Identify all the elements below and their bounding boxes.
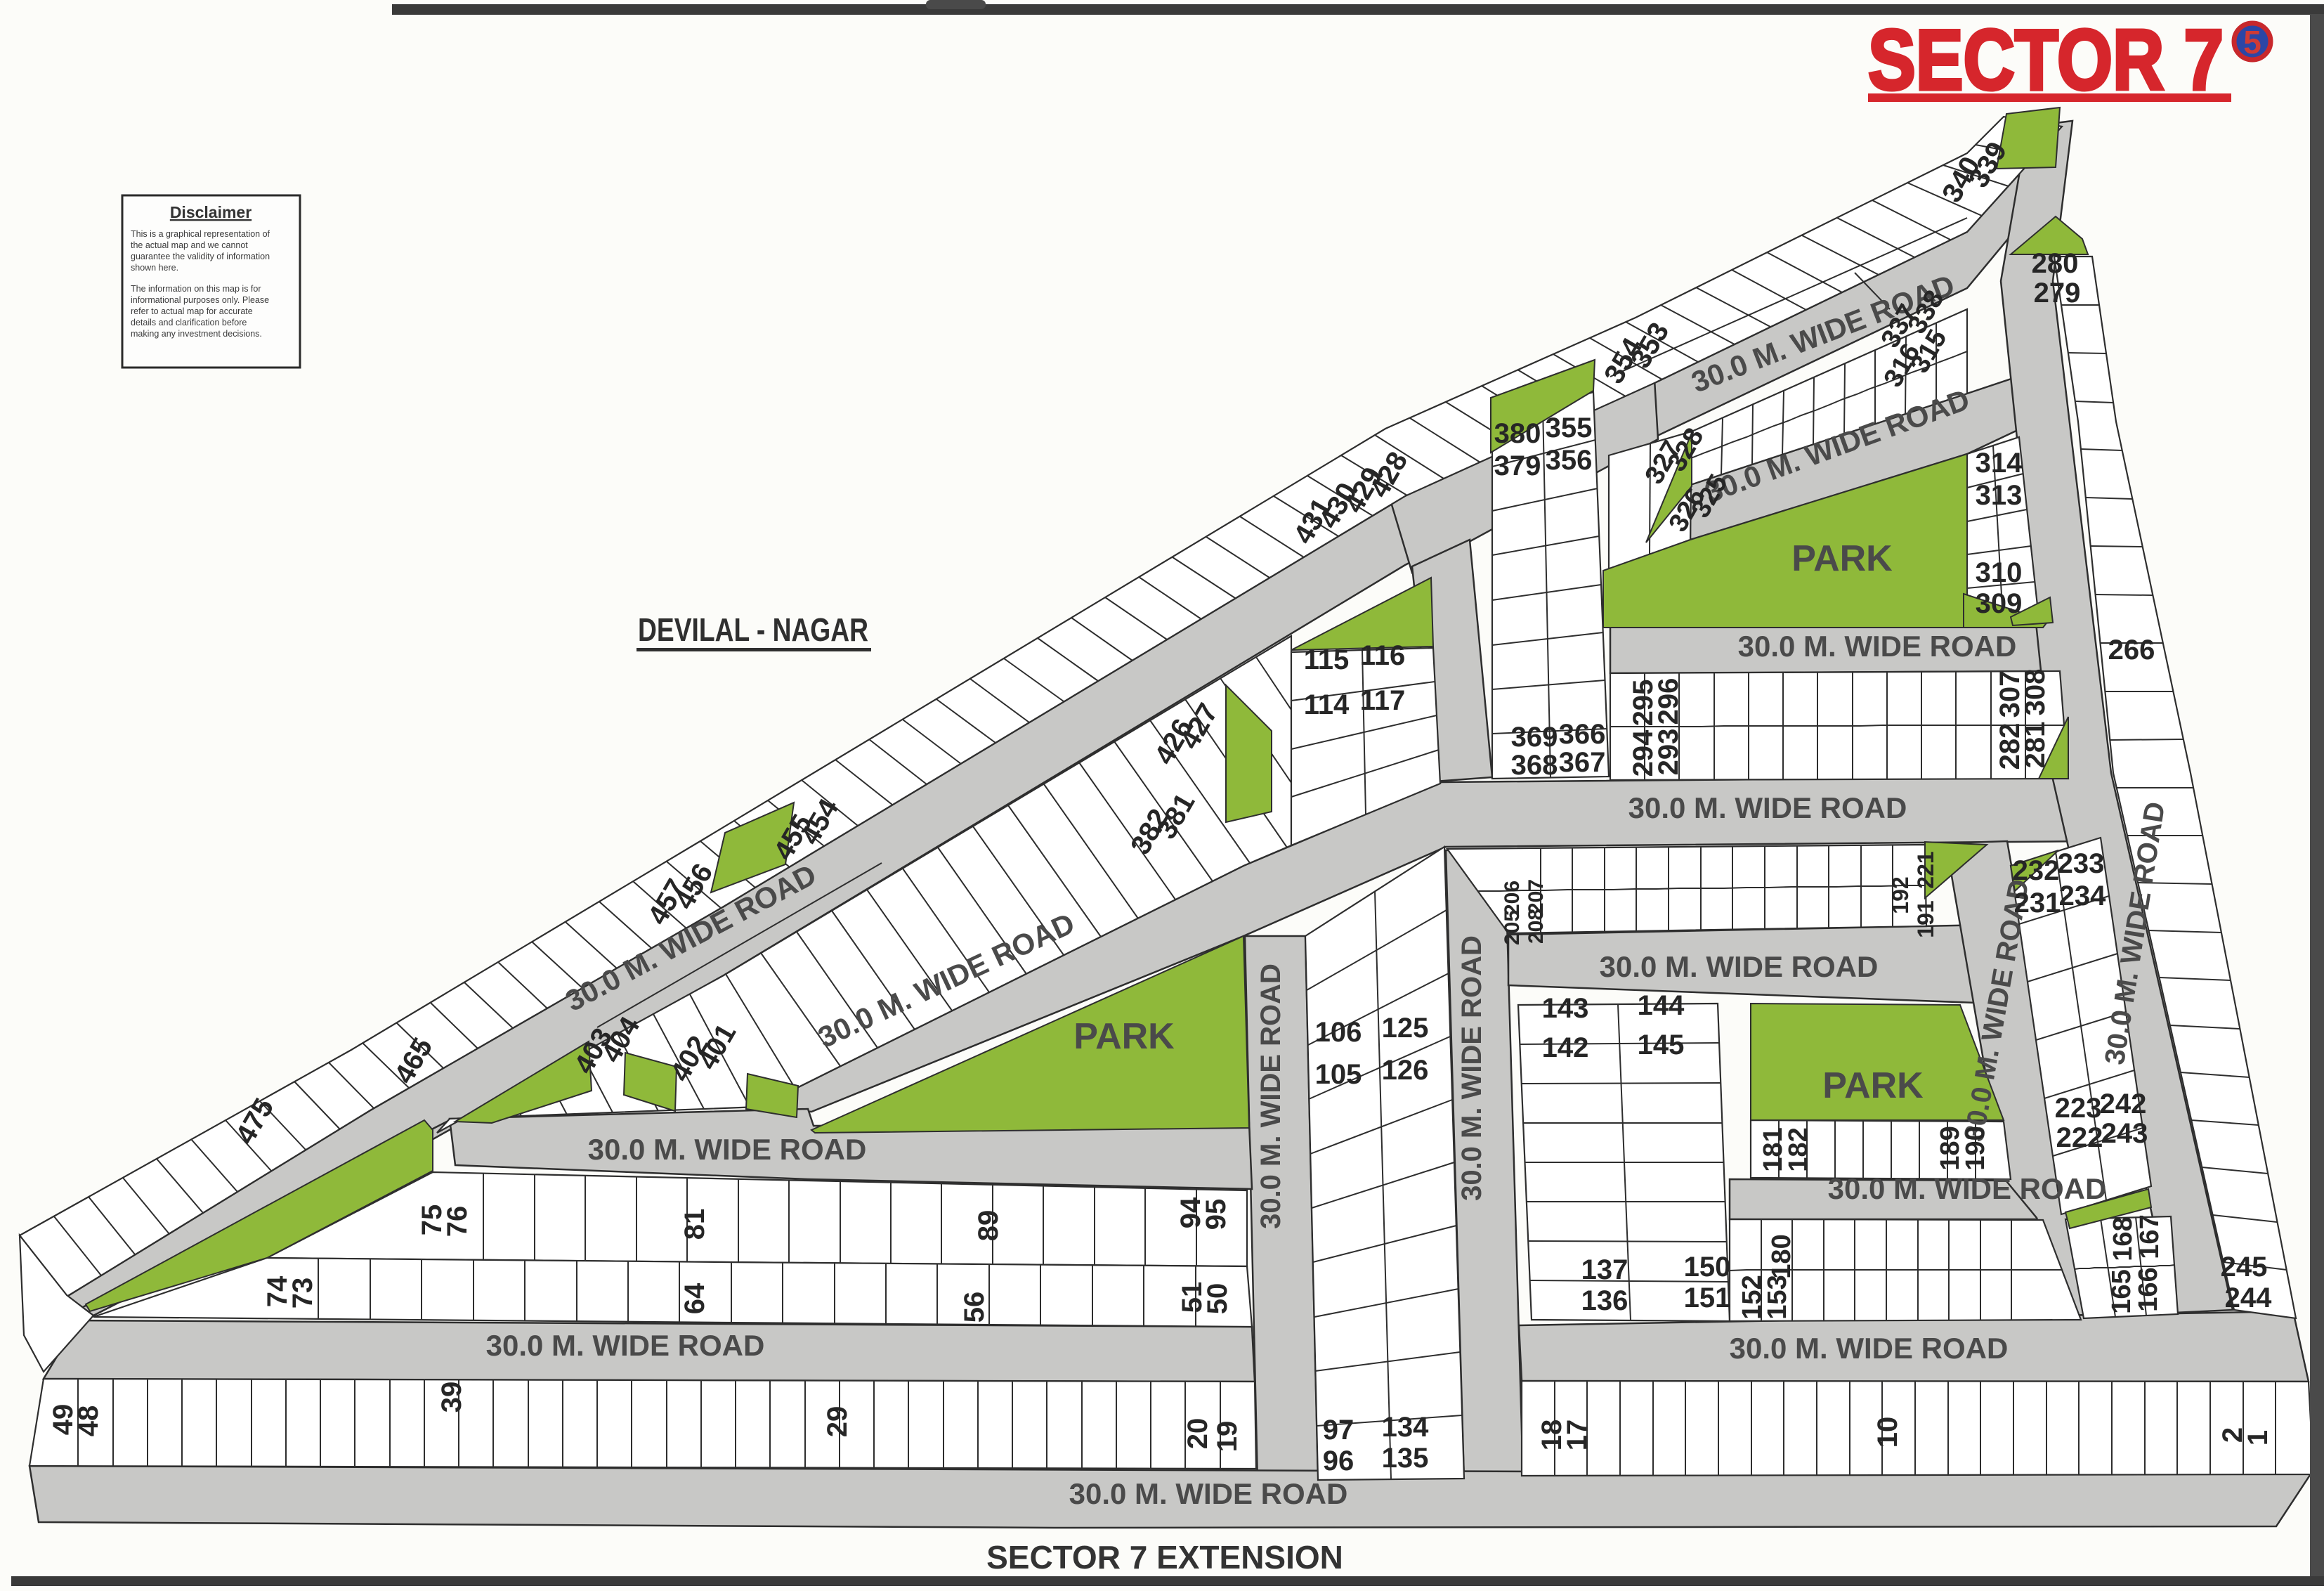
svg-text:280: 280 <box>2032 248 2079 279</box>
svg-text:30.0 M. WIDE ROAD: 30.0 M. WIDE ROAD <box>1730 1332 2009 1365</box>
svg-text:39: 39 <box>436 1382 467 1413</box>
svg-text:313: 313 <box>1976 480 2023 511</box>
svg-text:96: 96 <box>1323 1446 1354 1476</box>
svg-text:134: 134 <box>1382 1412 1429 1443</box>
svg-text:114: 114 <box>1304 689 1350 720</box>
svg-text:208: 208 <box>1525 909 1548 944</box>
svg-text:20: 20 <box>1182 1418 1213 1450</box>
svg-text:192: 192 <box>1888 876 1913 914</box>
svg-text:166: 166 <box>2134 1267 2163 1311</box>
svg-text:308: 308 <box>2020 669 2051 716</box>
svg-text:81: 81 <box>679 1209 710 1240</box>
svg-text:137: 137 <box>1581 1254 1628 1285</box>
svg-text:309: 309 <box>1976 588 2023 619</box>
svg-text:PARK: PARK <box>1822 1065 1924 1106</box>
svg-text:126: 126 <box>1382 1055 1429 1086</box>
svg-text:SECTOR 7: SECTOR 7 <box>1868 12 2224 108</box>
svg-text:279: 279 <box>2034 278 2081 309</box>
svg-text:205: 205 <box>1501 910 1524 945</box>
svg-text:165: 165 <box>2107 1269 2136 1313</box>
svg-text:379: 379 <box>1494 450 1541 481</box>
svg-text:144: 144 <box>1638 990 1685 1021</box>
svg-text:the actual map and we cannot: the actual map and we cannot <box>131 240 248 250</box>
svg-text:1: 1 <box>2243 1430 2273 1446</box>
svg-text:125: 125 <box>1382 1013 1429 1044</box>
svg-text:153: 153 <box>1763 1275 1792 1319</box>
svg-text:293: 293 <box>1653 729 1684 776</box>
svg-text:369: 369 <box>1511 722 1558 753</box>
svg-text:190: 190 <box>1961 1126 1990 1170</box>
svg-text:informational purposes only. P: informational purposes only. Please <box>131 295 269 305</box>
svg-text:266: 266 <box>2108 635 2155 665</box>
svg-text:10: 10 <box>1872 1417 1903 1448</box>
svg-text:222: 222 <box>2056 1122 2103 1153</box>
svg-text:231: 231 <box>2014 888 2061 918</box>
svg-text:232: 232 <box>2013 855 2060 886</box>
svg-text:50: 50 <box>1202 1283 1233 1315</box>
svg-text:5: 5 <box>2243 24 2261 60</box>
svg-text:The information on this map is: The information on this map is for <box>131 284 261 294</box>
svg-text:17: 17 <box>1562 1420 1593 1451</box>
svg-text:guarantee the validity of info: guarantee the validity of information <box>131 252 270 261</box>
svg-text:145: 145 <box>1638 1030 1685 1060</box>
svg-text:19: 19 <box>1212 1421 1243 1453</box>
svg-text:142: 142 <box>1542 1032 1589 1063</box>
svg-text:details and clarification befo: details and clarification before <box>131 318 247 327</box>
svg-text:Disclaimer: Disclaimer <box>170 203 252 221</box>
svg-text:180: 180 <box>1767 1234 1796 1278</box>
svg-text:182: 182 <box>1784 1127 1813 1171</box>
svg-text:95: 95 <box>1201 1199 1232 1230</box>
svg-text:117: 117 <box>1360 685 1406 716</box>
svg-text:30.0 M. WIDE ROAD: 30.0 M. WIDE ROAD <box>1069 1477 1348 1510</box>
svg-text:30.0 M. WIDE ROAD: 30.0 M. WIDE ROAD <box>1828 1172 2107 1205</box>
svg-text:244: 244 <box>2225 1282 2272 1313</box>
svg-text:234: 234 <box>2059 881 2106 911</box>
svg-text:167: 167 <box>2135 1214 2165 1259</box>
svg-text:143: 143 <box>1542 993 1589 1024</box>
svg-text:368: 368 <box>1511 750 1558 781</box>
svg-text:73: 73 <box>287 1278 318 1309</box>
svg-text:105: 105 <box>1315 1059 1362 1090</box>
svg-text:89: 89 <box>973 1210 1004 1242</box>
svg-text:191: 191 <box>1913 900 1938 937</box>
svg-text:30.0 M. WIDE ROAD: 30.0 M. WIDE ROAD <box>1456 935 1487 1201</box>
svg-text:PARK: PARK <box>1791 538 1893 579</box>
svg-text:380: 380 <box>1494 418 1541 449</box>
svg-text:shown here.: shown here. <box>131 263 178 273</box>
svg-text:76: 76 <box>442 1206 473 1238</box>
svg-text:355: 355 <box>1546 413 1593 443</box>
svg-text:314: 314 <box>1976 448 2023 479</box>
svg-text:168: 168 <box>2108 1216 2138 1261</box>
svg-text:SECTOR 7 EXTENSION: SECTOR 7 EXTENSION <box>986 1539 1343 1576</box>
svg-text:296: 296 <box>1653 678 1684 725</box>
svg-text:30.0 M. WIDE ROAD: 30.0 M. WIDE ROAD <box>1255 963 1286 1229</box>
svg-text:30.0 M. WIDE ROAD: 30.0 M. WIDE ROAD <box>1600 950 1879 983</box>
svg-text:106: 106 <box>1315 1017 1362 1048</box>
svg-text:56: 56 <box>959 1292 990 1323</box>
svg-text:135: 135 <box>1382 1443 1429 1474</box>
svg-text:223: 223 <box>2055 1093 2102 1124</box>
svg-text:242: 242 <box>2100 1089 2147 1119</box>
svg-text:281: 281 <box>2020 722 2051 769</box>
svg-text:DEVILAL - NAGAR: DEVILAL - NAGAR <box>638 611 868 648</box>
svg-text:This is a graphical representa: This is a graphical representation of <box>131 229 270 239</box>
svg-text:150: 150 <box>1684 1252 1731 1282</box>
svg-text:221: 221 <box>1913 851 1938 888</box>
svg-text:30.0 M. WIDE ROAD: 30.0 M. WIDE ROAD <box>588 1133 867 1166</box>
svg-text:245: 245 <box>2221 1252 2268 1282</box>
svg-text:233: 233 <box>2058 848 2105 879</box>
svg-text:310: 310 <box>1976 557 2023 588</box>
svg-text:151: 151 <box>1684 1282 1731 1313</box>
svg-text:30.0 M. WIDE ROAD: 30.0 M. WIDE ROAD <box>1738 630 2017 663</box>
svg-text:making any investment decision: making any investment decisions. <box>131 329 262 339</box>
svg-text:48: 48 <box>73 1405 104 1437</box>
svg-text:367: 367 <box>1559 747 1606 778</box>
svg-text:29: 29 <box>822 1406 853 1438</box>
svg-text:97: 97 <box>1323 1415 1354 1446</box>
svg-text:64: 64 <box>679 1282 710 1314</box>
svg-text:243: 243 <box>2101 1118 2148 1149</box>
svg-text:366: 366 <box>1559 719 1606 750</box>
svg-text:115: 115 <box>1304 644 1350 675</box>
svg-text:356: 356 <box>1546 445 1593 476</box>
svg-text:136: 136 <box>1581 1285 1628 1316</box>
svg-text:30.0 M. WIDE ROAD: 30.0 M. WIDE ROAD <box>1628 791 1907 824</box>
svg-text:116: 116 <box>1360 640 1406 671</box>
svg-text:refer to actual map for accura: refer to actual map for accurate <box>131 306 253 316</box>
svg-text:PARK: PARK <box>1073 1016 1175 1057</box>
svg-text:30.0 M. WIDE ROAD: 30.0 M. WIDE ROAD <box>486 1329 765 1362</box>
